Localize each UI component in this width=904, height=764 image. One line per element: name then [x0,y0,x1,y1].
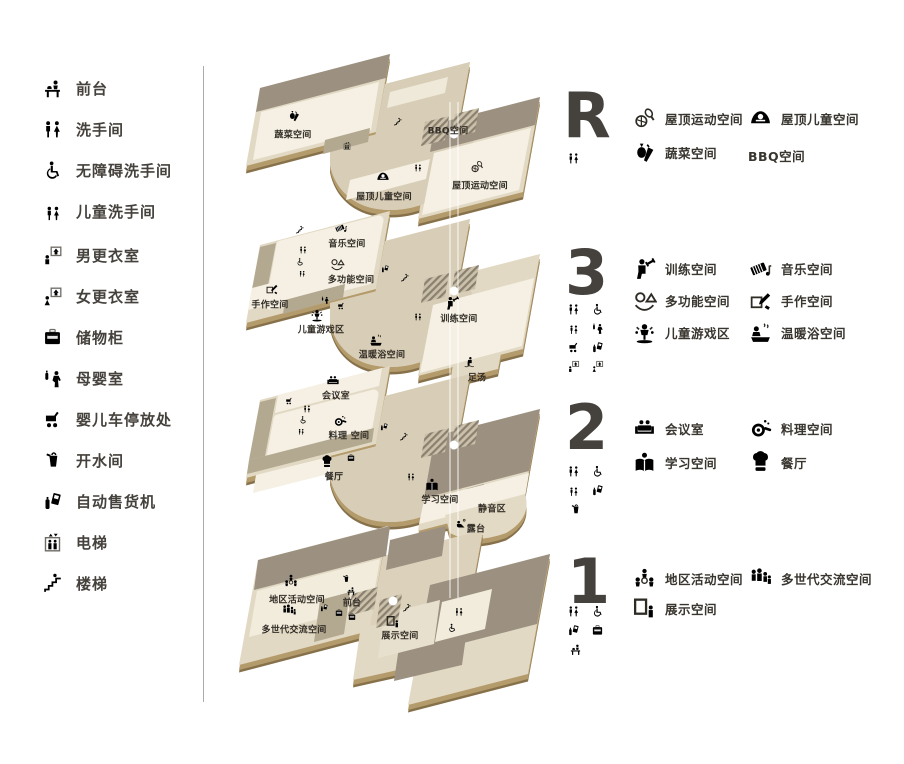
stroller-icon [337,302,346,311]
map-label-music: 音乐空间 [328,237,365,250]
restroom-icon [414,313,423,322]
floor-R-amenities [567,152,606,165]
facility-row: 蔬菜空间 [632,140,717,165]
facility-label: 多世代交流空间 [781,569,872,588]
legend-label: 女更衣室 [76,286,140,307]
restroom-icon [567,303,580,316]
facility-label: 料理空间 [781,419,833,438]
generation-icon [748,566,773,591]
restroom-icon [414,164,423,173]
legend-label: 储物柜 [76,327,124,348]
facility-row: BBQ空间 [748,146,805,165]
locker-icon [348,613,357,622]
facility-label: 会议室 [665,419,704,438]
mens-locker-icon [567,360,580,373]
map-label-community: 地区活动空间 [269,593,325,606]
legend-label: 楼梯 [76,573,108,594]
map-label-front-desk: 前台 [343,596,362,609]
map-label-training: 训练空间 [440,312,477,325]
floor-1-amenities [567,605,606,656]
restroom-icon [567,465,580,478]
floor-number-3: 3 [565,247,606,300]
facility-label: 手作空间 [781,291,833,310]
vending-machine-icon [591,341,604,354]
legend-item: 女更衣室 [42,284,140,308]
vegetable-icon [632,140,657,165]
stairs-icon [400,433,409,442]
training-icon [444,295,460,311]
community-icon [632,566,657,591]
restroom-icon [42,119,63,140]
restroom-icon [454,607,464,617]
roof-sports-icon [470,160,485,175]
facility-row: 会议室 [632,416,704,441]
facility-label: 训练空间 [665,259,717,278]
vending-machine-icon [380,423,389,432]
mens-locker-icon [42,245,63,266]
facility-label: 学习空间 [665,453,717,472]
floor-number-1: 1 [567,556,608,609]
legend-item: 男更衣室 [42,243,140,267]
roof-sports-icon [632,106,657,131]
restroom-icon [407,473,416,482]
legend-label: 男更衣室 [76,245,140,266]
facility-row: 多功能空间 [632,288,730,313]
facility-row: 屋顶运动空间 [632,106,743,131]
map-label-terrace: 露台 [467,522,486,535]
womens-locker-icon [42,286,63,307]
legend-label: 婴儿车停放处 [76,409,172,430]
legend-label: 儿童洗手间 [76,201,156,222]
elevator-icon [343,142,352,151]
kids-play-icon [632,320,657,345]
accessible-restroom-icon [296,258,305,267]
facility-row: 料理空间 [748,416,833,441]
map-label-bbq: BBQ空间 [428,124,469,137]
locker-icon [347,454,356,463]
floor-number-R: R [563,90,609,143]
generation-icon [281,603,297,619]
reception-icon [42,78,63,99]
multi-purpose-icon [632,288,657,313]
map-label-generation: 多世代交流空间 [261,623,326,636]
map-label-multi: 多功能空间 [328,273,375,286]
kids-restroom-icon [297,427,306,436]
floor-number-2: 2 [565,402,606,455]
map-label-quiet-zone: 静音区 [478,502,506,515]
kids-play-icon [310,308,325,323]
nursing-room-icon [321,296,330,305]
meeting-icon [632,416,657,441]
meeting-icon [326,374,341,389]
map-label-exhibit: 展示空间 [381,629,418,642]
hot-water-icon [569,503,582,516]
legend-label: 母婴室 [76,368,124,389]
nursing-room-icon [42,368,63,389]
facility-row: 屋顶儿童空间 [748,106,859,131]
stroller-icon [42,409,63,430]
reception-icon [569,643,582,656]
facility-row: 手作空间 [748,288,833,313]
training-icon [632,256,657,281]
map-label-roof-sports: 屋顶运动空间 [452,179,508,192]
legend-divider [203,66,204,702]
vending-machine-icon [591,484,604,497]
facility-row: 多世代交流空间 [748,566,872,591]
legend-label: 前台 [76,78,108,99]
legend-item: 婴儿车停放处 [42,407,172,431]
stairs-icon [42,573,63,594]
restroom-icon [567,605,580,618]
restroom-icon [567,152,580,165]
vending-machine-icon [42,491,63,512]
legend-item: 电梯 [42,530,108,554]
map-label-cooking: 料理 空间 [329,429,370,442]
map-label-vegetable: 蔬菜空间 [274,128,311,141]
legend-item: 楼梯 [42,571,108,595]
facility-row: 训练空间 [632,256,717,281]
accessible-restroom-icon [299,416,308,425]
craft-icon [265,282,279,296]
restaurant-icon [748,450,773,475]
music-icon [748,256,773,281]
craft-icon [748,288,773,313]
map-label-meeting: 会议室 [322,389,350,402]
locker-icon [335,609,344,618]
study-icon [424,477,440,493]
stairs-icon [394,118,403,127]
facility-row: 餐厅 [748,450,807,475]
locker-icon [42,327,63,348]
facility-row: 地区活动空间 [632,566,743,591]
facility-label: 展示空间 [665,599,717,618]
locker-icon [591,624,604,637]
facility-row: 温暖浴空间 [748,320,846,345]
map-floor-2 [246,366,540,547]
legend-item: 储物柜 [42,325,124,349]
vending-machine-icon [381,265,390,274]
legend-item: 前台 [42,76,108,100]
facility-row: 儿童游戏区 [632,320,730,345]
stroller-icon [285,397,294,406]
stairs-icon [403,604,412,613]
legend-label: 自动售货机 [76,491,156,512]
stroller-icon [567,341,580,354]
music-icon [334,221,348,235]
kids-restroom-icon [567,322,580,335]
facility-label: 屋顶运动空间 [665,109,743,128]
reception-icon [346,586,356,596]
restroom-icon [299,246,308,255]
facility-label: 音乐空间 [781,259,833,278]
facility-row: 音乐空间 [748,256,833,281]
legend-label: 无障碍洗手间 [76,160,172,181]
roof-kids-icon [376,170,391,185]
map-label-restaurant: 餐厅 [325,470,344,483]
floor-guide-page: 前台 洗手间 无障碍洗手间 儿童洗手间 男更衣室 女更衣室 储物柜 母婴室 婴儿… [0,0,904,764]
bath-icon [748,320,773,345]
exhibit-icon [386,615,401,630]
kids-restroom-icon [42,201,63,222]
foot-bath-icon [463,356,476,369]
legend-item: 无障碍洗手间 [42,158,172,182]
kids-restroom-icon [298,269,307,278]
accessible-restroom-icon [591,303,604,316]
map-label-roof-kids: 屋顶儿童空间 [356,190,412,203]
facility-label: 多功能空间 [665,291,730,310]
legend-label: 洗手间 [76,119,124,140]
facility-label: BBQ空间 [748,146,805,165]
vending-machine-icon [320,604,329,613]
legend-item: 儿童洗手间 [42,199,156,223]
legend-label: 电梯 [76,532,108,553]
map-floor-3 [246,211,540,389]
stairs-icon [401,274,410,283]
facility-row: 展示空间 [632,596,717,621]
hot-water-icon [341,574,351,584]
map-label-bath: 温暖浴空间 [359,348,406,361]
bath-icon [369,333,384,348]
accessible-restroom-icon [42,160,63,181]
cooking-icon [333,414,348,429]
accessible-restroom-icon [591,605,604,618]
map-label-footbath: 足汤 [468,371,487,384]
womens-locker-icon [591,360,604,373]
legend-label: 开水间 [76,450,124,471]
map-label-study: 学习空间 [421,493,458,506]
facility-label: 餐厅 [781,453,807,472]
multi-purpose-icon [330,257,345,272]
floor-3-amenities [567,303,606,373]
study-icon [632,450,657,475]
roof-kids-icon [748,106,773,131]
map-label-craft: 手作空间 [251,298,288,311]
legend-item: 洗手间 [42,117,124,141]
legend-item: 母婴室 [42,366,124,390]
cooking-icon [748,416,773,441]
facility-row: 学习空间 [632,450,717,475]
nursing-room-icon [591,322,604,335]
map-label-kids-play: 儿童游戏区 [298,323,345,336]
restaurant-icon [320,455,335,470]
legend-item: 开水间 [42,448,124,472]
hot-water-icon [42,450,63,471]
restroom-icon [303,405,312,414]
accessible-restroom-icon [591,465,604,478]
elevator-icon [42,532,63,553]
facility-label: 地区活动空间 [665,569,743,588]
floor-2-amenities [567,465,606,516]
vending-machine-icon [567,624,580,637]
facility-label: 温暖浴空间 [781,323,846,342]
exhibit-icon [632,596,657,621]
facility-label: 屋顶儿童空间 [781,109,859,128]
stairs-icon [296,226,305,235]
legend-item: 自动售货机 [42,489,156,513]
community-icon [283,573,299,589]
facility-label: 儿童游戏区 [665,323,730,342]
kids-restroom-icon [567,484,580,497]
accessible-restroom-icon [447,623,457,633]
vegetable-icon [287,109,301,123]
facility-label: 蔬菜空间 [665,143,717,162]
